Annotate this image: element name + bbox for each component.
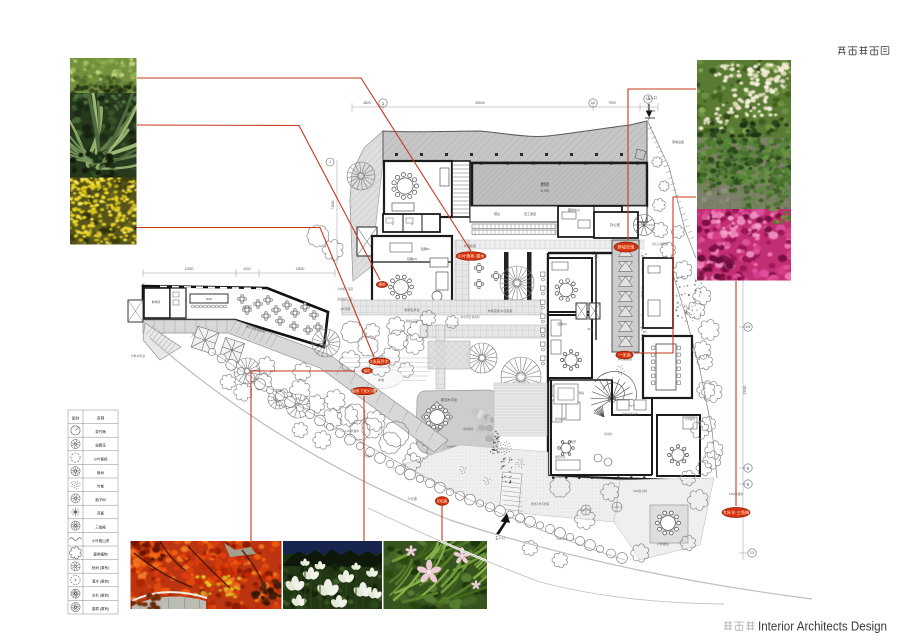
svg-text:柚子树: 柚子树 xyxy=(95,497,106,502)
svg-text:10: 10 xyxy=(591,100,596,105)
svg-text:户外餐位: 户外餐位 xyxy=(657,541,669,546)
svg-text:6.750: 6.750 xyxy=(541,189,550,193)
svg-text:灌木 (原有): 灌木 (原有) xyxy=(92,579,109,584)
svg-text:7900: 7900 xyxy=(608,101,616,105)
svg-text:桃花: 桃花 xyxy=(364,368,371,373)
svg-text:戏水池: 戏水池 xyxy=(604,432,612,436)
svg-text:假山: 假山 xyxy=(435,427,441,431)
svg-text:13650: 13650 xyxy=(296,267,305,271)
svg-text:人行道: 人行道 xyxy=(407,496,417,501)
svg-text:办公室: 办公室 xyxy=(610,222,621,227)
svg-text:围墙设备: 围墙设备 xyxy=(672,139,684,144)
svg-text:4米高: 4米高 xyxy=(437,498,448,505)
svg-text:Interior Architects Design: Interior Architects Design xyxy=(758,619,887,634)
svg-text:厨房: 厨房 xyxy=(541,181,550,188)
svg-text:小叶黄杨: 小叶黄杨 xyxy=(94,456,108,461)
svg-text:4820: 4820 xyxy=(363,101,371,105)
svg-text:2000: 2000 xyxy=(649,109,656,113)
svg-text:包厢(X): 包厢(X) xyxy=(407,256,417,261)
svg-text:小叶黄杨: 小叶黄杨 xyxy=(340,307,351,311)
svg-text:水池: 水池 xyxy=(378,377,384,382)
svg-text:13: 13 xyxy=(646,96,651,101)
svg-text:竹郁: 竹郁 xyxy=(97,484,104,489)
svg-text:鹅卵石铺装: 鹅卵石铺装 xyxy=(406,319,419,323)
svg-text:J: J xyxy=(329,159,331,164)
svg-text:防腐木: 防腐木 xyxy=(364,454,372,458)
svg-text:户外木平台: 户外木平台 xyxy=(131,354,145,358)
svg-text:户外餐位: 户外餐位 xyxy=(685,417,696,421)
svg-text:13: 13 xyxy=(750,550,755,555)
svg-text:枫树 7米X7棵: 枫树 7米X7棵 xyxy=(351,388,377,395)
svg-text:一米高: 一米高 xyxy=(618,352,631,359)
svg-text:BAR: BAR xyxy=(206,297,212,301)
svg-text:图例: 图例 xyxy=(72,416,80,421)
svg-text:烧烤平台不锈钢: 烧烤平台不锈钢 xyxy=(531,502,550,506)
svg-text:爬墙玫瑰: 爬墙玫瑰 xyxy=(618,244,636,251)
svg-text:23300: 23300 xyxy=(743,385,747,394)
svg-text:布草间及 管井间: 布草间及 管井间 xyxy=(461,315,480,319)
svg-text:三角梅: 三角梅 xyxy=(95,524,106,529)
svg-text:包厢(X): 包厢(X) xyxy=(557,322,566,326)
svg-text:茶竹梅: 茶竹梅 xyxy=(95,429,106,434)
svg-text:30600: 30600 xyxy=(475,101,485,105)
svg-text:12M高大树: 12M高大树 xyxy=(633,489,647,493)
svg-text:果树: 果树 xyxy=(379,282,386,287)
svg-text:新加木平台: 新加木平台 xyxy=(441,397,457,402)
svg-text:1.2M高灌木: 1.2M高灌木 xyxy=(345,429,360,433)
svg-text:白色木质平台: 白色木质平台 xyxy=(622,412,638,416)
svg-text:包厢00: 包厢00 xyxy=(421,247,430,251)
svg-text:芭蕉: 芭蕉 xyxy=(97,511,104,516)
svg-text:4500: 4500 xyxy=(587,327,593,331)
svg-text:12500: 12500 xyxy=(185,267,194,271)
svg-text:藤类植物: 藤类植物 xyxy=(94,552,108,557)
svg-text:迎春花: 迎春花 xyxy=(95,443,106,448)
svg-text:服务中心: 服务中心 xyxy=(568,207,580,212)
svg-text:装饰格栅: 装饰格栅 xyxy=(555,417,566,421)
svg-text:水杉 (原有): 水杉 (原有) xyxy=(92,592,109,597)
svg-text:员工通道: 员工通道 xyxy=(524,211,536,216)
svg-text:大叶伞·三角梅: 大叶伞·三角梅 xyxy=(723,509,750,516)
svg-text:碎石子铺装道: 碎石子铺装道 xyxy=(652,242,668,246)
svg-text:香樟 (原有): 香樟 (原有) xyxy=(92,606,109,611)
svg-text:室外餐位: 室外餐位 xyxy=(463,427,474,431)
svg-text:布草走廊 牛仔走廊: 布草走廊 牛仔走廊 xyxy=(488,308,513,313)
svg-text:15: 15 xyxy=(746,324,751,329)
svg-text:制作间: 制作间 xyxy=(152,300,161,304)
svg-text:小叶爬山虎: 小叶爬山虎 xyxy=(92,538,110,543)
svg-text:柏树 (原有): 柏树 (原有) xyxy=(92,565,109,570)
svg-text:遮阳伞座: 遮阳伞座 xyxy=(555,455,566,459)
svg-text:鹅卵石步道: 鹅卵石步道 xyxy=(404,307,419,312)
svg-text:枫树: 枫树 xyxy=(97,470,104,475)
svg-text:小叶黄杨·灌木: 小叶黄杨·灌木 xyxy=(458,253,485,260)
svg-text:4200: 4200 xyxy=(243,267,250,271)
svg-text:名称: 名称 xyxy=(97,416,105,421)
svg-text:2米高乔木: 2米高乔木 xyxy=(370,358,389,364)
svg-text:74600: 74600 xyxy=(331,200,335,209)
svg-text:吧台: 吧台 xyxy=(494,211,500,216)
